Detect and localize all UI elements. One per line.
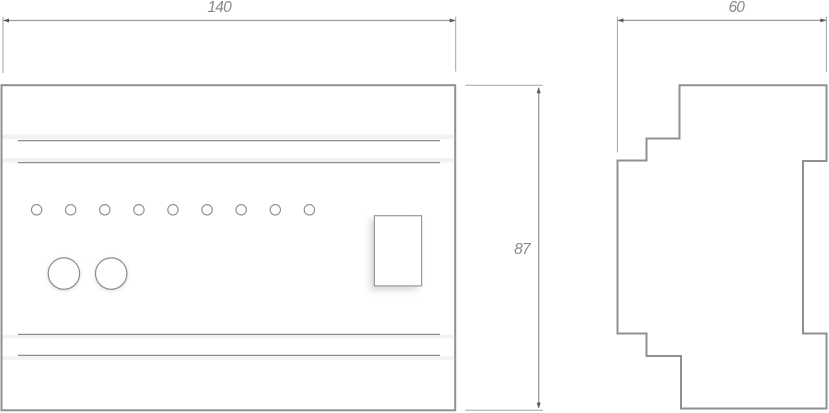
svg-text:140: 140 — [207, 0, 232, 16]
svg-text:60: 60 — [728, 0, 745, 16]
svg-text:87: 87 — [514, 241, 532, 258]
